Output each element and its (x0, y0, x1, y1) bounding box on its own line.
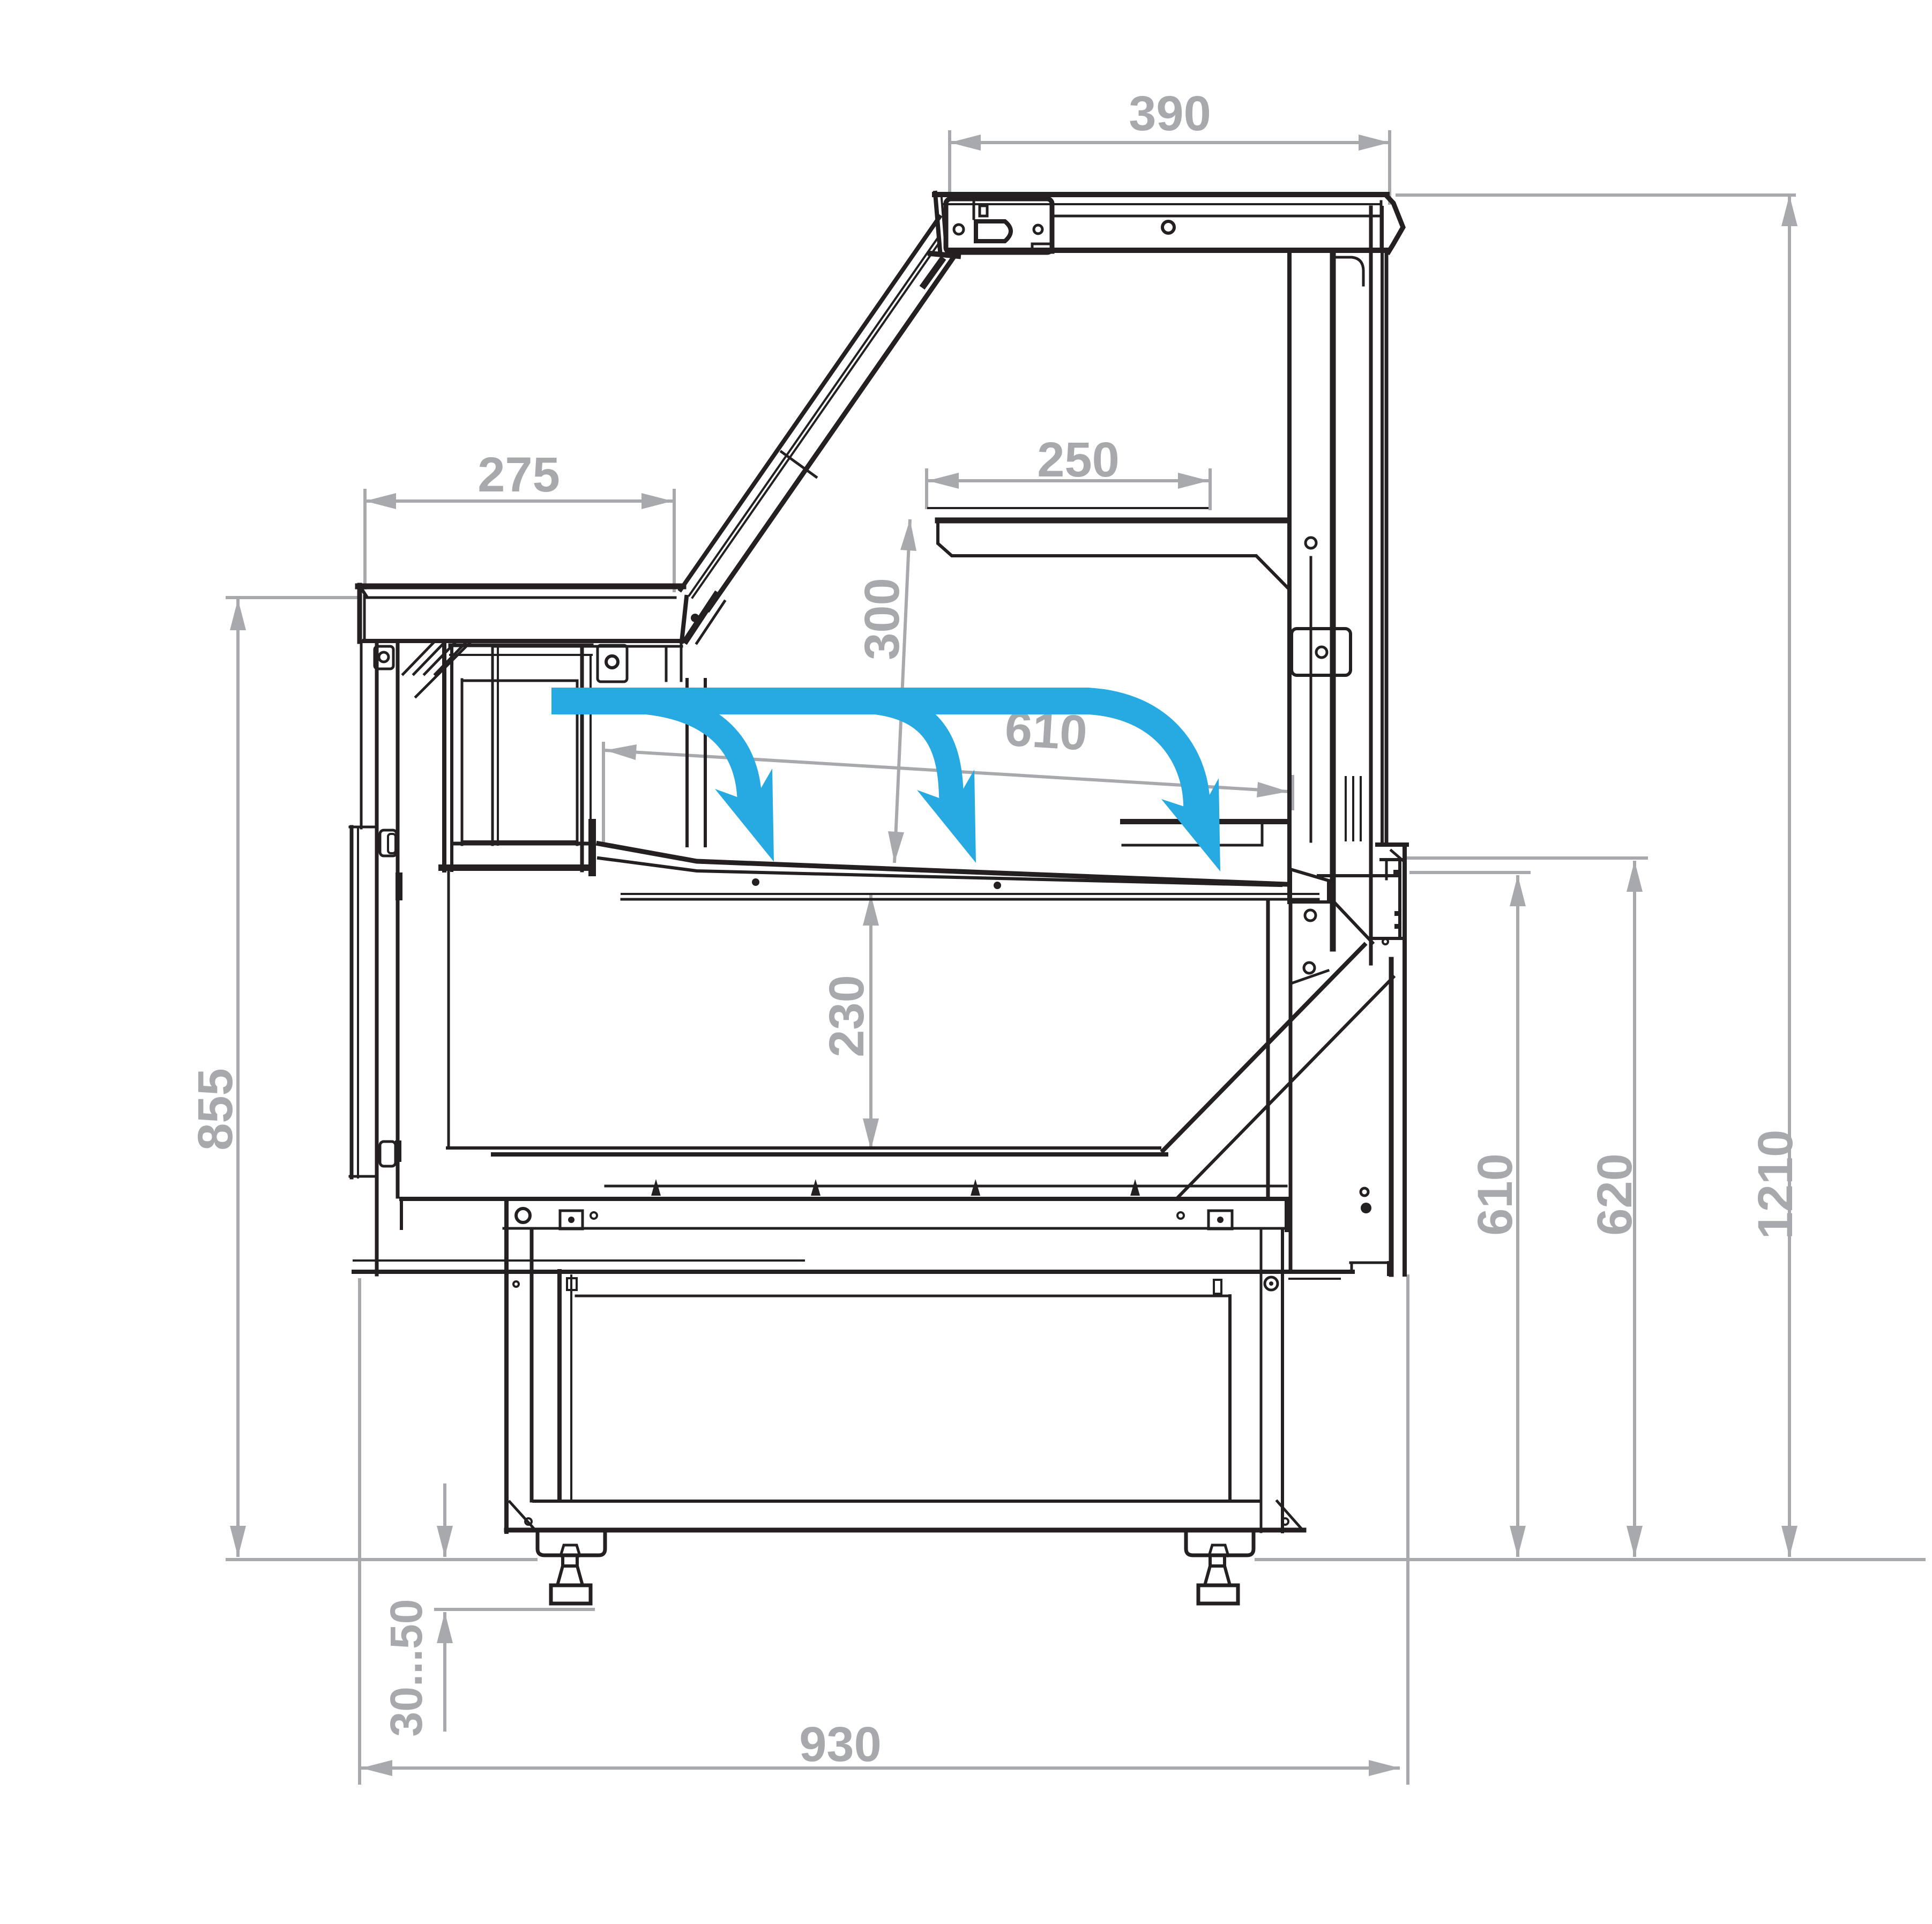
svg-text:300: 300 (855, 578, 909, 660)
svg-text:30...50: 30...50 (381, 1599, 431, 1737)
svg-text:855: 855 (188, 1068, 243, 1151)
svg-text:1210: 1210 (1748, 1130, 1803, 1240)
svg-text:930: 930 (799, 1717, 882, 1772)
svg-text:620: 620 (1587, 1153, 1642, 1236)
svg-text:390: 390 (1129, 86, 1211, 141)
svg-text:275: 275 (478, 448, 560, 502)
svg-text:250: 250 (1037, 432, 1120, 487)
svg-text:610: 610 (1468, 1153, 1523, 1236)
svg-text:230: 230 (819, 975, 874, 1057)
